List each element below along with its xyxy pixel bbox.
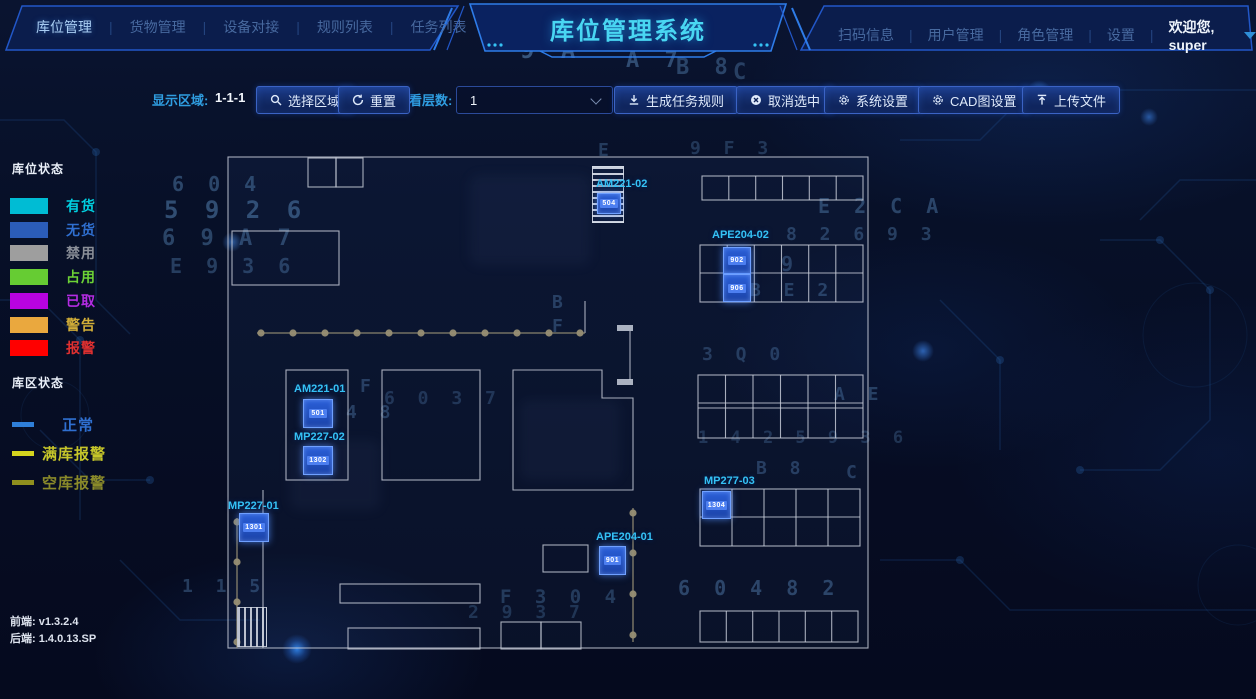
cell-number: 1302	[307, 456, 329, 465]
button-label: 取消选中	[768, 91, 820, 110]
status-swatch	[10, 293, 48, 309]
cancel-selection-button[interactable]: 取消选中	[736, 86, 834, 114]
secondary-nav: 扫码信息|用户管理|角色管理|设置|欢迎您, super	[838, 17, 1256, 53]
nav-tab-left-0[interactable]: 库位管理	[36, 17, 92, 37]
button-label: 系统设置	[856, 91, 908, 110]
plan-cell[interactable]: 902	[723, 247, 751, 274]
cad-settings-button[interactable]: CAD图设置	[918, 86, 1030, 114]
status-label: 禁用	[66, 243, 96, 263]
chevron-down-icon	[590, 93, 601, 104]
user-menu[interactable]: 欢迎您, super	[1169, 17, 1256, 53]
search-icon	[270, 94, 282, 106]
caret-down-icon	[1244, 32, 1256, 39]
refresh-icon	[352, 94, 364, 106]
system-settings-button[interactable]: 系统设置	[824, 86, 922, 114]
zone-status-item: 空库报警	[12, 472, 106, 493]
nav-tab-right-1[interactable]: 用户管理	[928, 25, 984, 45]
slot-status-item: 无货	[10, 220, 96, 240]
button-label: 重置	[370, 91, 396, 110]
cancel-icon	[750, 94, 762, 106]
layer-select-value: 1	[470, 93, 592, 108]
button-label: CAD图设置	[950, 91, 1016, 110]
zone-status-title: 库区状态	[12, 374, 64, 391]
matrix-glyph: B 8	[676, 55, 734, 80]
slot-status-item: 已取	[10, 291, 96, 311]
status-label: 有货	[66, 196, 96, 216]
nav-divider: |	[1150, 27, 1154, 43]
status-swatch	[10, 245, 48, 261]
cell-number: 902	[728, 256, 745, 265]
slot-status-item: 有货	[10, 196, 96, 216]
status-label: 警告	[66, 315, 96, 335]
status-swatch	[10, 269, 48, 285]
generate-task-rule-button[interactable]: 生成任务规则	[614, 86, 738, 114]
main-nav: 库位管理|货物管理|设备对接|规则列表|任务列表	[36, 17, 467, 37]
status-label: 占用	[66, 267, 96, 287]
nav-tab-left-2[interactable]: 设备对接	[223, 17, 279, 37]
slot-status-item: 警告	[10, 315, 96, 335]
nav-tab-right-2[interactable]: 角色管理	[1017, 25, 1073, 45]
slot-status-item: 报警	[10, 338, 96, 358]
slot-status-item: 占用	[10, 267, 96, 287]
status-swatch	[10, 317, 48, 333]
nav-tab-left-3[interactable]: 规则列表	[317, 17, 373, 37]
status-swatch	[10, 198, 48, 214]
nav-divider: |	[999, 27, 1003, 43]
matrix-glyph: 9 F 3	[690, 138, 774, 159]
frontend-version: 前端: v1.3.2.4	[10, 613, 78, 629]
nav-divider: |	[1088, 27, 1092, 43]
layer-select[interactable]: 1	[456, 86, 613, 114]
upload-icon	[1036, 94, 1048, 106]
slot-status-item: 禁用	[10, 243, 96, 263]
cell-number: 906	[728, 284, 745, 293]
download-icon	[628, 94, 640, 106]
backend-version: 后端: 1.4.0.13.SP	[10, 630, 96, 646]
button-label: 上传文件	[1054, 91, 1106, 110]
cell-number: 501	[309, 409, 326, 418]
slot-status-title: 库位状态	[12, 160, 64, 177]
display-area-value: 1-1-1	[215, 90, 245, 105]
nav-tab-left-1[interactable]: 货物管理	[130, 17, 186, 37]
reset-button[interactable]: 重置	[338, 86, 410, 114]
nav-divider: |	[296, 19, 300, 35]
plan-cell[interactable]: 901	[599, 546, 626, 575]
matrix-glyph: C	[733, 60, 752, 85]
zone-status-item: 正常	[12, 414, 94, 435]
zone-swatch	[12, 451, 34, 456]
zone-swatch	[12, 422, 34, 427]
plan-cell[interactable]: 906	[723, 274, 751, 302]
upload-file-button[interactable]: 上传文件	[1022, 86, 1120, 114]
plan-cell[interactable]: 1302	[303, 446, 333, 475]
zone-label: 空库报警	[42, 472, 106, 493]
nav-tab-left-4[interactable]: 任务列表	[411, 17, 467, 37]
zone-label: 正常	[62, 414, 94, 435]
welcome-text: 欢迎您, super	[1169, 17, 1235, 53]
plan-cell[interactable]: 504	[597, 193, 621, 214]
cell-number: 901	[604, 556, 621, 565]
zone-swatch	[12, 480, 34, 485]
status-swatch	[10, 222, 48, 238]
nav-divider: |	[109, 19, 113, 35]
plan-cell[interactable]: 1301	[239, 513, 269, 542]
button-label: 生成任务规则	[646, 91, 724, 110]
plan-cell[interactable]: 501	[303, 399, 333, 428]
plan-cell[interactable]: 1304	[702, 491, 731, 519]
button-label: 选择区域	[288, 91, 340, 110]
toolbar: 显示区域: 1-1-1 查看层数: 1 选择区域重置生成任务规则取消选中系统设置…	[0, 84, 1256, 114]
status-label: 已取	[66, 291, 96, 311]
nav-divider: |	[203, 19, 207, 35]
gear-icon	[932, 94, 944, 106]
nav-tab-right-0[interactable]: 扫码信息	[838, 25, 894, 45]
app-root: 9 AA 7B 8C6 0 45 9 2 66 9 A 7E 9 3 6E 2 …	[0, 0, 1256, 699]
gear-icon	[838, 94, 850, 106]
status-label: 报警	[66, 338, 96, 358]
cell-number: 1304	[706, 501, 728, 510]
nav-divider: |	[390, 19, 394, 35]
cell-number: 504	[600, 199, 617, 208]
cell-number: 1301	[243, 523, 265, 532]
status-label: 无货	[66, 220, 96, 240]
zone-status-item: 满库报警	[12, 443, 106, 464]
zone-label: 满库报警	[42, 443, 106, 464]
status-swatch	[10, 340, 48, 356]
nav-tab-right-3[interactable]: 设置	[1107, 25, 1135, 45]
page-title: 库位管理系统	[470, 11, 786, 46]
nav-divider: |	[909, 27, 913, 43]
header-bar: 库位管理|货物管理|设备对接|规则列表|任务列表 库位管理系统 扫码信息|用户管…	[0, 0, 1256, 58]
display-area-label: 显示区域:	[152, 90, 208, 109]
